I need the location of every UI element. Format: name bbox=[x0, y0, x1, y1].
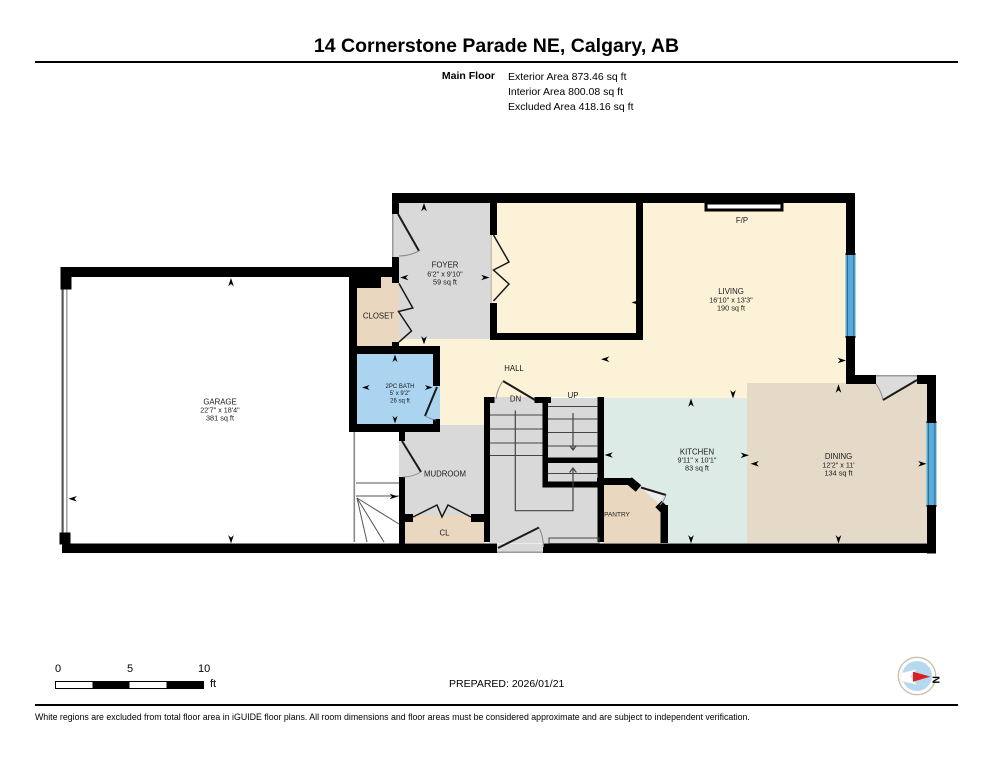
svg-text:5' x 9'2": 5' x 9'2" bbox=[390, 391, 411, 397]
svg-text:N: N bbox=[930, 676, 942, 684]
svg-text:26 sq ft: 26 sq ft bbox=[390, 398, 410, 404]
svg-text:CLOSET: CLOSET bbox=[363, 311, 394, 320]
svg-text:PANTRY: PANTRY bbox=[604, 512, 630, 519]
svg-text:83 sq ft: 83 sq ft bbox=[685, 463, 709, 472]
svg-text:134 sq ft: 134 sq ft bbox=[825, 468, 853, 477]
svg-text:381 sq ft: 381 sq ft bbox=[206, 414, 234, 423]
svg-text:UP: UP bbox=[568, 391, 579, 400]
svg-text:190 sq ft: 190 sq ft bbox=[717, 304, 745, 313]
svg-text:MUDROOM: MUDROOM bbox=[424, 470, 466, 479]
svg-text:59 sq ft: 59 sq ft bbox=[433, 278, 457, 287]
svg-text:CL: CL bbox=[440, 529, 451, 538]
svg-text:2PC BATH: 2PC BATH bbox=[386, 384, 415, 390]
svg-text:HALL: HALL bbox=[504, 364, 524, 373]
svg-text:DN: DN bbox=[510, 395, 521, 404]
svg-text:FOYER: FOYER bbox=[432, 261, 459, 270]
svg-text:F/P: F/P bbox=[736, 216, 748, 225]
